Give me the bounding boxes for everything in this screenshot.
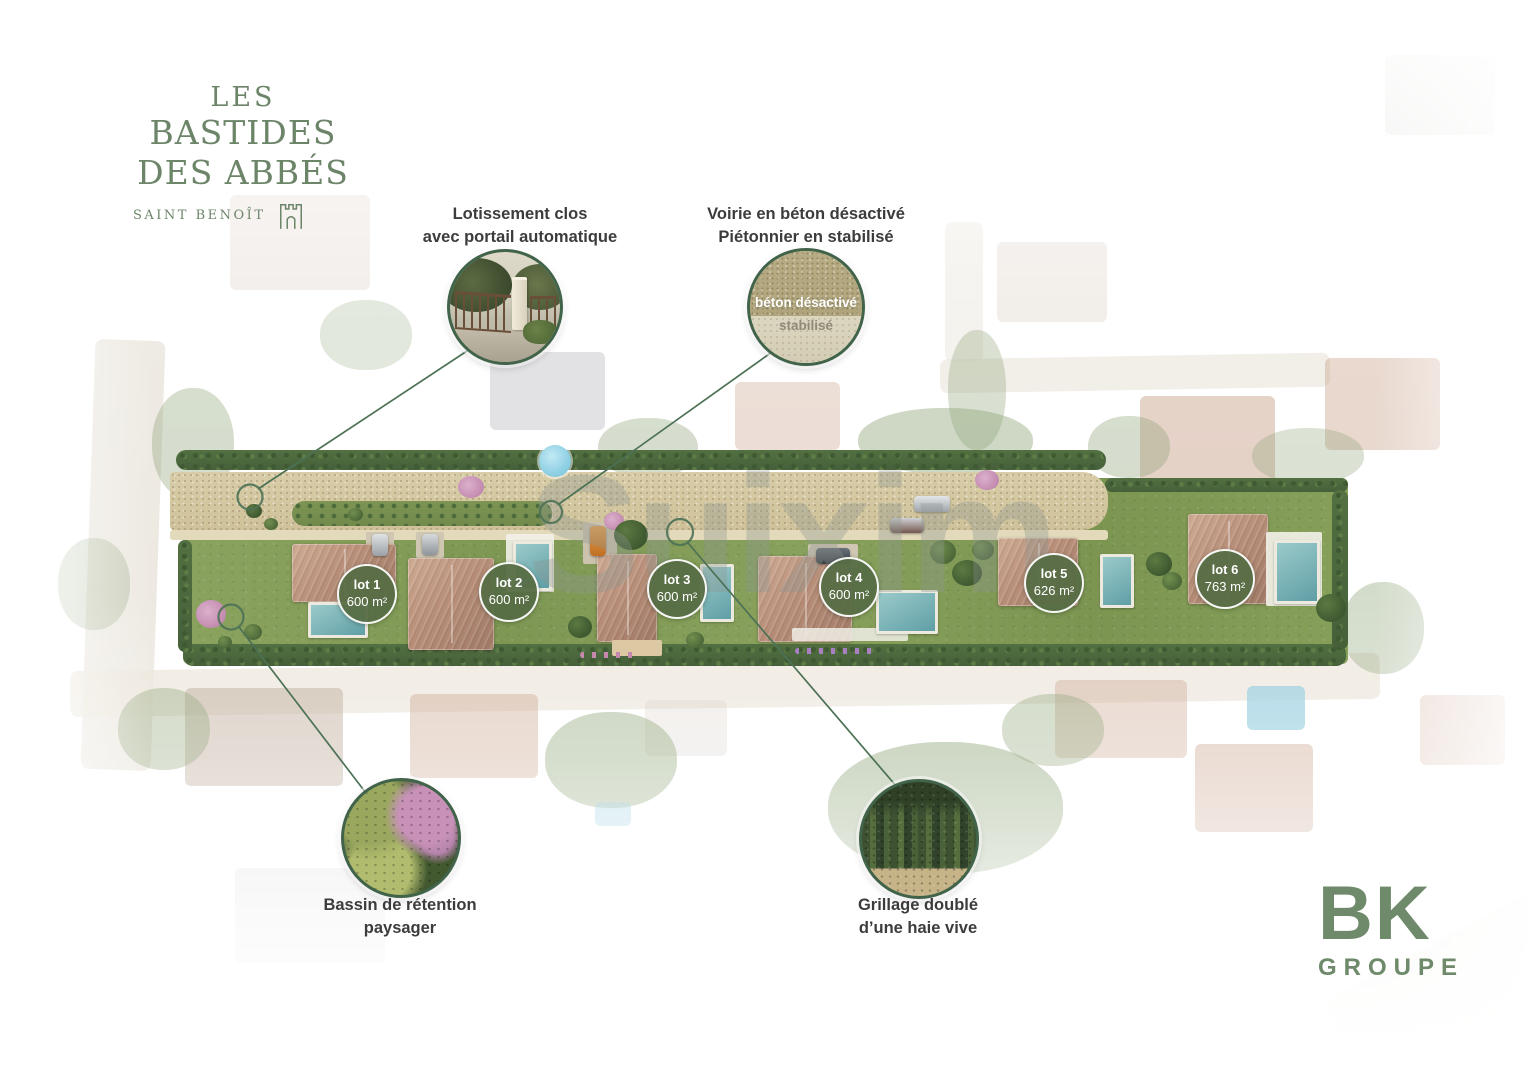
lot-badge-2: lot 2 600 m² [479, 562, 539, 622]
flower-row [580, 652, 640, 658]
hedge-left [178, 540, 192, 652]
tree [972, 540, 994, 560]
logo-subtitle: SAINT BENOÎT [133, 208, 266, 223]
surrounding-roof [735, 382, 840, 450]
flowering-tree [196, 600, 226, 628]
surrounding-roof [997, 242, 1107, 322]
lot-area: 626 m² [1034, 583, 1074, 600]
site-plan-poster: Suixim lot 1 600 m² lot 2 600 m² lot 3 6… [0, 0, 1526, 1080]
hedge-top-right [1105, 478, 1348, 492]
gate-label-line1: Lotissement clos [370, 203, 670, 226]
fence-label-line1: Grillage doublé [768, 894, 1068, 917]
fence-photo-circle [859, 779, 979, 899]
surrounding-tree [545, 712, 677, 808]
surrounding-tree [1002, 694, 1104, 766]
surrounding-roof [410, 694, 538, 778]
shrub [686, 632, 704, 648]
gate-photo-hedge [523, 320, 557, 344]
road-sample-circle: béton désactivé stabilisé [747, 248, 865, 366]
tree [952, 560, 982, 586]
logo-les: LES [123, 82, 363, 113]
basin-photo-circle [341, 778, 461, 898]
castle-icon [278, 202, 304, 230]
hedge-top [176, 450, 1106, 470]
flower-row [795, 648, 875, 654]
lot-name: lot 5 [1041, 566, 1068, 583]
shrub [348, 508, 363, 521]
flowering-tree [975, 470, 999, 490]
car [890, 518, 924, 533]
basin-annotation-label: Bassin de rétention paysager [250, 894, 550, 940]
surrounding-tree [948, 330, 1006, 450]
car [914, 496, 950, 512]
surrounding-pool [1247, 686, 1305, 730]
swimming-pool-lot4 [876, 590, 938, 634]
logo-des-abbes: DES ABBÉS [123, 153, 363, 193]
basin-label-line1: Bassin de rétention [250, 894, 550, 917]
road-median-planting [292, 501, 552, 526]
hedge-right [1332, 490, 1348, 650]
lot-area: 600 m² [347, 594, 387, 611]
surrounding-tree [58, 538, 130, 630]
lot-area: 763 m² [1205, 579, 1245, 596]
tree [568, 616, 592, 638]
flowering-tree [458, 476, 484, 498]
logo-subtitle-row: SAINT BENOÎT [123, 202, 363, 230]
shrub [246, 504, 262, 518]
lot-badge-3: lot 3 600 m² [647, 559, 707, 619]
gate-label-line2: avec portail automatique [370, 226, 670, 249]
surrounding-tree [320, 300, 412, 370]
hedge-bottom [183, 644, 1346, 666]
shrub [218, 636, 232, 648]
gate-photo-pillar [512, 277, 527, 330]
pond [539, 445, 571, 477]
lot-area: 600 m² [829, 587, 869, 604]
road-annotation-label: Voirie en béton désactivé Piétonnier en … [656, 203, 956, 249]
lot-name: lot 3 [664, 572, 691, 589]
sample-beton-label: béton désactivé [750, 295, 862, 310]
lot-badge-4: lot 4 600 m² [819, 557, 879, 617]
surrounding-roof [1420, 695, 1505, 765]
tree [1162, 572, 1182, 590]
road-label-line1: Voirie en béton désactivé [656, 203, 956, 226]
surrounding-tree [118, 688, 210, 770]
lot-area: 600 m² [657, 589, 697, 606]
bk-logo: BK GROUPE [1318, 876, 1488, 982]
swimming-pool-lot5 [1100, 554, 1134, 608]
surrounding-pool [595, 802, 631, 826]
surrounding-roof [1195, 744, 1313, 832]
lot-area: 600 m² [489, 592, 529, 609]
lot-name: lot 4 [836, 570, 863, 587]
lot-name: lot 1 [354, 577, 381, 594]
tree [1316, 594, 1346, 622]
car [372, 534, 388, 556]
surrounding-roof [1385, 55, 1495, 135]
surrounding-tree [1342, 582, 1424, 674]
project-logo: LES BASTIDES DES ABBÉS SAINT BENOÎT [123, 82, 363, 230]
road-label-line2: Piétonnier en stabilisé [656, 226, 956, 249]
lot-name: lot 6 [1212, 562, 1239, 579]
tree [614, 520, 648, 550]
lot-badge-1: lot 1 600 m² [337, 564, 397, 624]
lot-badge-5: lot 5 626 m² [1024, 553, 1084, 613]
sample-stabilise-label: stabilisé [750, 318, 862, 333]
basin-label-line2: paysager [250, 917, 550, 940]
gate-photo-gate-bars [455, 291, 511, 333]
bk-groupe-label: GROUPE [1318, 954, 1488, 982]
lot-badge-6: lot 6 763 m² [1195, 549, 1255, 609]
swimming-pool-lot6 [1274, 540, 1320, 604]
surrounding-tree [1252, 428, 1364, 484]
shrub [244, 624, 262, 640]
fence-annotation-label: Grillage doublé d’une haie vive [768, 894, 1068, 940]
gate-photo-circle [447, 249, 563, 365]
car [422, 534, 438, 555]
lot-name: lot 2 [496, 575, 523, 592]
gate-annotation-label: Lotissement clos avec portail automatiqu… [370, 203, 670, 249]
tree [930, 540, 956, 564]
shrub [264, 518, 278, 530]
bk-letters: BK [1318, 876, 1488, 952]
fence-label-line2: d’une haie vive [768, 917, 1068, 940]
logo-bastides: BASTIDES [123, 113, 363, 153]
car [590, 526, 606, 556]
